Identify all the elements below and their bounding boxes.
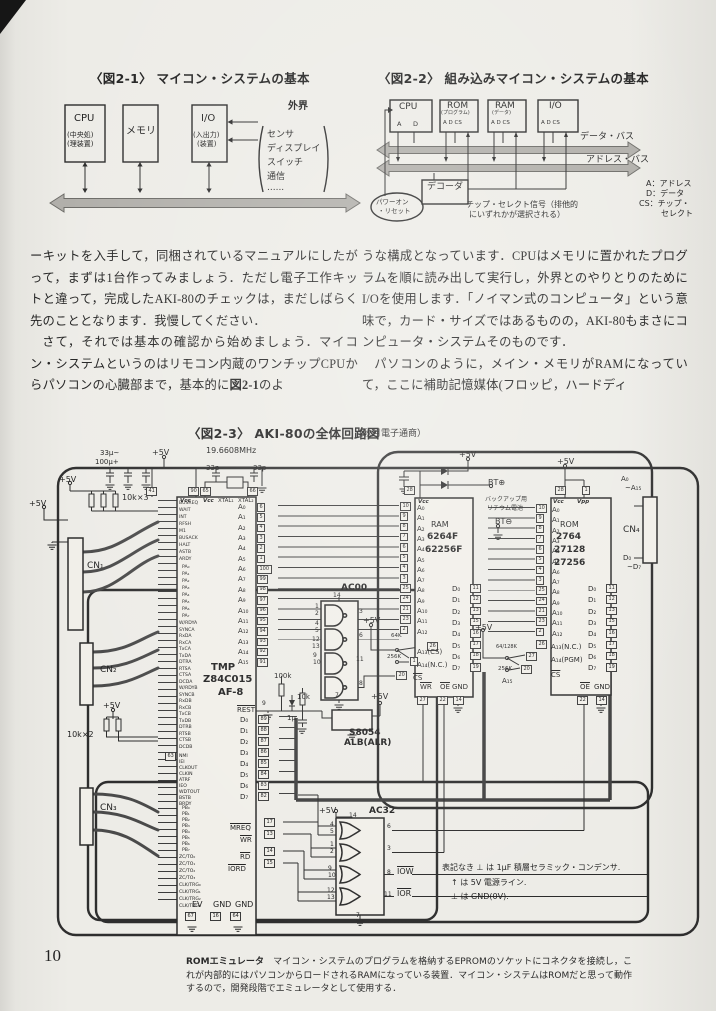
footer-glossary-note: ROMエミュレータ マイコン・システムのプログラムを格納するEPROMのソケット… (186, 956, 632, 997)
fig21-artwork (50, 105, 360, 212)
rom-chip-outline (551, 498, 611, 695)
crystal (227, 477, 243, 488)
body-column-right: うな構成となっています．CPUはメモリに置かれたプログラムを順に読み出して実行し… (362, 246, 688, 397)
paragraph-text: のよ (259, 378, 284, 392)
s8054-outline (332, 710, 372, 730)
fig23-components (42, 455, 657, 935)
diagram-artwork (0, 0, 716, 1011)
cn3-connector (80, 788, 93, 845)
body-column-left: ーキットを入手して，同梱されているマニュアルにしたがって，まずは1台作ってみまし… (30, 246, 358, 397)
glossary-term: ROMエミュレータ (186, 957, 264, 967)
resistor-10k (300, 693, 305, 705)
cn4-connector (643, 497, 657, 563)
paragraph-text: さて，それでは基本の確認から始めましょう．マイコン・システムというのはリモコン内… (30, 335, 358, 392)
paragraph: ーキットを入手して，同梱されているマニュアルにしたがって，まずは1台作ってみまし… (30, 246, 358, 332)
figure-reference: 図2-1 (229, 378, 259, 392)
cpu-chip-outline (177, 497, 256, 935)
paragraph: さて，それでは基本の確認から始めましょう．マイコン・システムというのはリモコン内… (30, 332, 358, 397)
paragraph: パソコンのように，メイン・メモリがRAMになっていて，ここに補助記憶媒体(フロッ… (362, 354, 688, 397)
ram-chip-outline (415, 498, 473, 697)
resistor-100k (279, 684, 284, 696)
cn1-connector (68, 538, 83, 630)
scanned-book-page: 〈図2-1〉 マイコン・システムの基本CPU(中央処)(理装置)メモリI/O(入… (0, 0, 716, 1011)
paragraph-text: うな構成となっています．CPUはメモリに置かれたプログラムを順に読み出して実行し… (362, 249, 688, 349)
paragraph-text: ーキットを入手して，同梱されているマニュアルにしたがって，まずは1台作ってみまし… (30, 249, 358, 328)
page-number: 10 (44, 946, 61, 966)
fig22-artwork (371, 100, 640, 221)
paragraph: うな構成となっています．CPUはメモリに置かれたプログラムを順に読み出して実行し… (362, 246, 688, 354)
cn2-connector (80, 643, 93, 705)
paragraph-text: パソコンのように，メイン・メモリがRAMになっていて，ここに補助記憶媒体(フロッ… (362, 357, 688, 393)
